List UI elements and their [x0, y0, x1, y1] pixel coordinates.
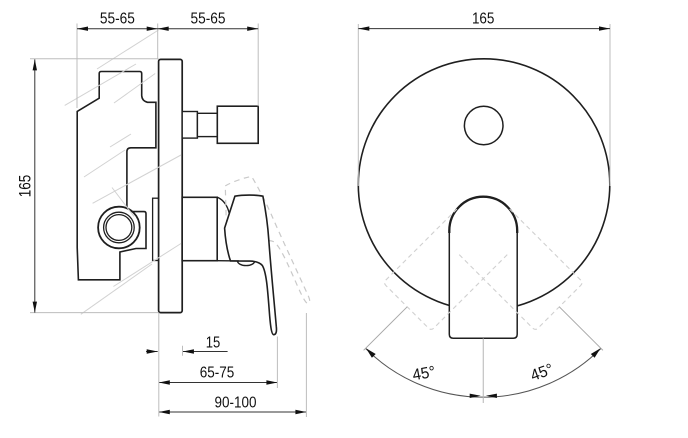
- svg-text:165: 165: [472, 11, 495, 28]
- svg-text:15: 15: [206, 335, 221, 352]
- svg-text:90-100: 90-100: [215, 395, 257, 412]
- svg-text:55-65: 55-65: [191, 11, 226, 28]
- svg-text:165: 165: [17, 175, 35, 198]
- svg-text:55-65: 55-65: [100, 11, 135, 28]
- svg-text:65-75: 65-75: [200, 365, 235, 382]
